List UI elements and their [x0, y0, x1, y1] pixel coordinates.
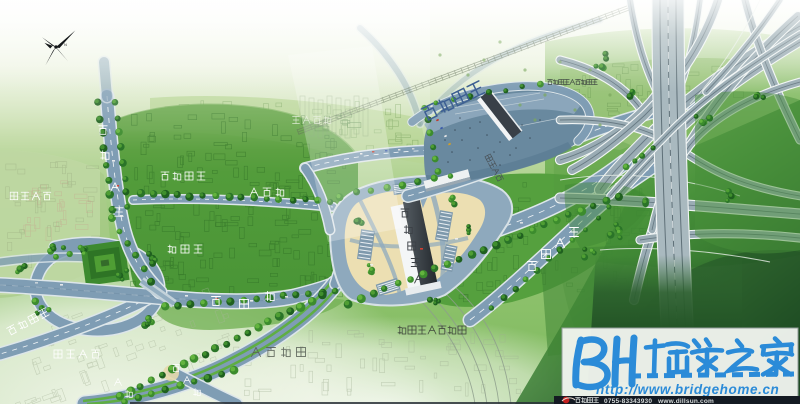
svg-text:http://www.bridgehome.cn: http://www.bridgehome.cn [596, 382, 779, 397]
svg-text:0755-83343930 www.dillsun.co: 0755-83343930 www.dillsun.com [604, 398, 714, 404]
svg-text:N: N [64, 42, 67, 47]
